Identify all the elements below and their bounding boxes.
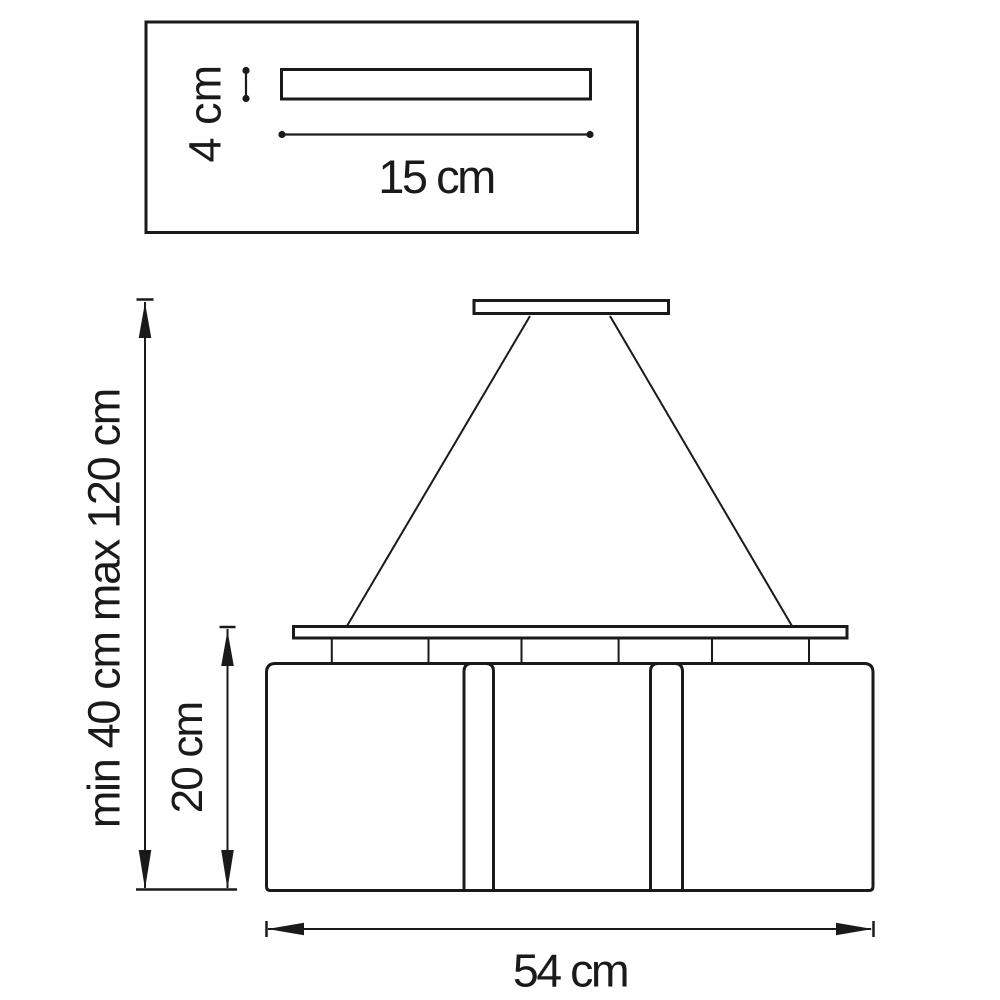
svg-text:54 cm: 54 cm [513,945,627,997]
svg-text:4 cm: 4 cm [180,65,231,163]
svg-text:min 40 cm max 120 cm: min 40 cm max 120 cm [79,389,130,828]
svg-text:20 cm: 20 cm [163,703,212,814]
svg-text:15 cm: 15 cm [378,150,494,203]
